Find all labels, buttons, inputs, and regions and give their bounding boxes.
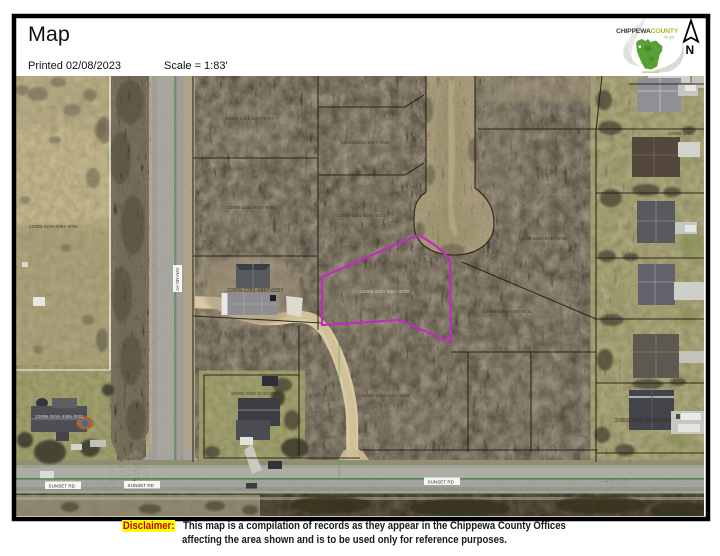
svg-text:22809-2241-5847-0033: 22809-2241-5847-0033 <box>337 213 386 218</box>
svg-text:22809-2241-5847-0037: 22809-2241-5847-0037 <box>225 116 274 121</box>
svg-text:WI GIS: WI GIS <box>664 36 674 40</box>
svg-text:GRAND AV: GRAND AV <box>175 268 180 292</box>
svg-text:22809-2616-4465-0001: 22809-2616-4465-0001 <box>35 414 84 419</box>
svg-text:22809-2281-5867-0057: 22809-2281-5867-0057 <box>227 288 283 294</box>
svg-text:22809-2263-5847-0031: 22809-2263-5847-0031 <box>483 309 532 314</box>
svg-text:22809-2263: 22809-2263 <box>668 131 693 136</box>
svg-text:22809-2263-5847-0036: 22809-2263-5847-0036 <box>518 236 567 241</box>
svg-text:22809-2630-5742-0001: 22809-2630-5742-0001 <box>231 391 280 396</box>
svg-text:SUNSET RD: SUNSET RD <box>128 483 155 488</box>
svg-text:CHIPPEWACOUNTY: CHIPPEWACOUNTY <box>616 28 679 35</box>
svg-text:N: N <box>686 43 695 57</box>
svg-text:22809-2263-5847-0038: 22809-2263-5847-0038 <box>360 289 409 294</box>
svg-text:22809-2241-5847-0040: 22809-2241-5847-0040 <box>341 140 390 145</box>
svg-text:22809-2681-6657-0000: 22809-2681-6657-0000 <box>615 418 671 424</box>
svg-text:22809-2263-5847-0035: 22809-2263-5847-0035 <box>361 393 410 398</box>
svg-text:SUNSET RD: SUNSET RD <box>428 479 455 484</box>
svg-text:22809-2241-5847-0051: 22809-2241-5847-0051 <box>227 205 276 210</box>
svg-text:22809-2236-0957-0000: 22809-2236-0957-0000 <box>29 224 78 229</box>
svg-text:SUNSET RD: SUNSET RD <box>49 483 76 488</box>
